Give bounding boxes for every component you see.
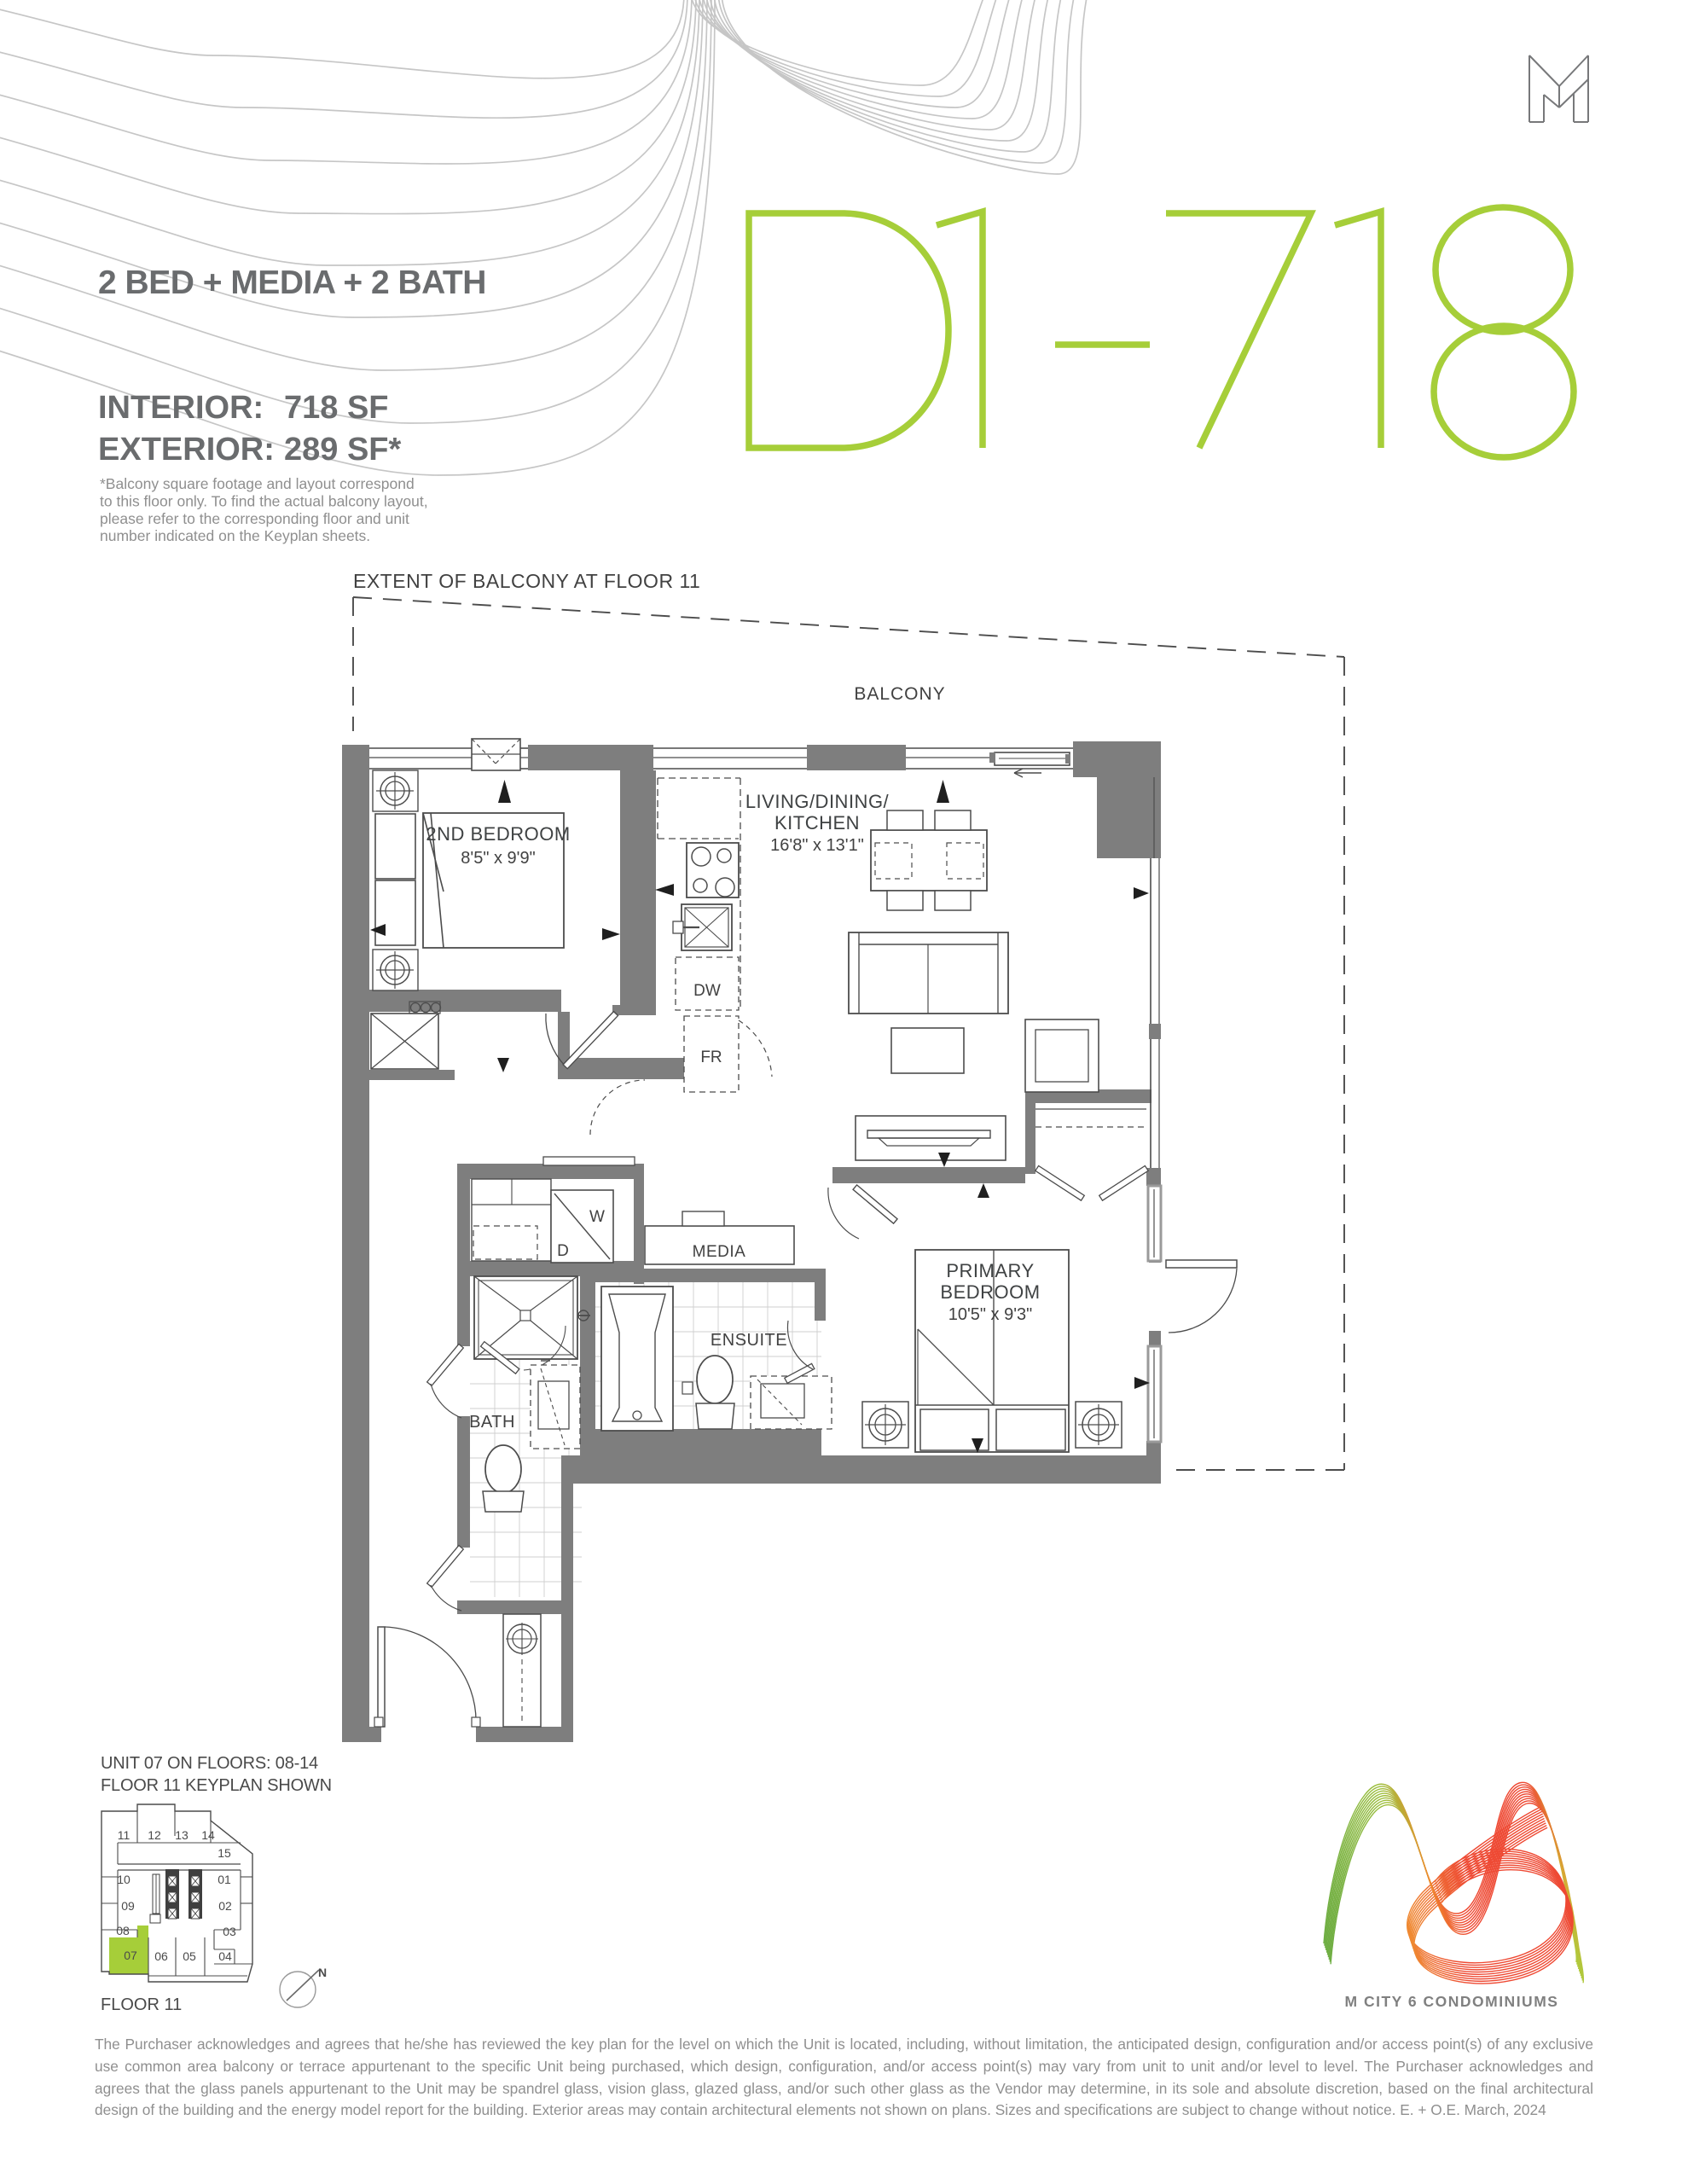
svg-text:FLOOR 11: FLOOR 11 <box>101 1995 182 2014</box>
svg-text:13: 13 <box>175 1828 189 1842</box>
svg-text:08: 08 <box>116 1924 130 1937</box>
svg-text:to this floor only. To find th: to this floor only. To find the actual b… <box>100 492 428 509</box>
svg-text:KITCHEN: KITCHEN <box>774 812 860 834</box>
svg-text:2ND BEDROOM: 2ND BEDROOM <box>426 823 570 845</box>
svg-text:16'8" x 13'1": 16'8" x 13'1" <box>770 836 864 855</box>
svg-text:12: 12 <box>148 1828 161 1842</box>
svg-text:04: 04 <box>218 1949 232 1963</box>
svg-text:07: 07 <box>124 1949 137 1962</box>
svg-text:D: D <box>557 1242 569 1260</box>
svg-text:INTERIOR:718 SF: INTERIOR:718 SF <box>98 390 389 426</box>
svg-text:02: 02 <box>218 1899 232 1913</box>
svg-text:8'5" x 9'9": 8'5" x 9'9" <box>461 849 535 868</box>
svg-text:10: 10 <box>117 1873 131 1886</box>
svg-text:N: N <box>318 1966 327 1979</box>
svg-text:W: W <box>589 1208 605 1226</box>
svg-text:M CITY 6 CONDOMINIUMS: M CITY 6 CONDOMINIUMS <box>1345 1993 1559 2010</box>
svg-text:BATH: BATH <box>469 1413 515 1432</box>
svg-text:UNIT 07 ON FLOORS: 08-14: UNIT 07 ON FLOORS: 08-14 <box>101 1754 318 1773</box>
svg-text:10'5" x 9'3": 10'5" x 9'3" <box>948 1305 1033 1324</box>
svg-text:05: 05 <box>183 1949 196 1963</box>
svg-text:03: 03 <box>223 1925 236 1938</box>
svg-text:PRIMARY: PRIMARY <box>946 1260 1034 1281</box>
svg-text:FLOOR 11 KEYPLAN SHOWN: FLOOR 11 KEYPLAN SHOWN <box>101 1776 332 1795</box>
svg-text:11: 11 <box>118 1828 131 1842</box>
svg-text:EXTERIOR:289 SF*: EXTERIOR:289 SF* <box>98 432 402 468</box>
svg-text:please refer to the correspond: please refer to the corresponding floor … <box>100 510 409 527</box>
svg-text:LIVING/DINING/: LIVING/DINING/ <box>745 791 890 812</box>
svg-text:ENSUITE: ENSUITE <box>711 1331 787 1350</box>
svg-text:FR: FR <box>700 1048 722 1066</box>
svg-text:number indicated on the Keypla: number indicated on the Keyplan sheets. <box>100 527 370 544</box>
svg-text:14: 14 <box>201 1828 215 1842</box>
svg-text:2 BED + MEDIA + 2 BATH: 2 BED + MEDIA + 2 BATH <box>98 264 486 301</box>
svg-text:BEDROOM: BEDROOM <box>940 1281 1040 1303</box>
svg-text:09: 09 <box>121 1899 135 1913</box>
svg-text:BALCONY: BALCONY <box>854 684 945 704</box>
svg-text:*Balcony square footage and la: *Balcony square footage and layout corre… <box>100 475 415 492</box>
svg-text:01: 01 <box>218 1873 231 1886</box>
svg-text:06: 06 <box>154 1949 168 1963</box>
svg-text:EXTENT OF BALCONY AT FLOOR 11: EXTENT OF BALCONY AT FLOOR 11 <box>353 570 700 592</box>
svg-text:DW: DW <box>693 982 721 1000</box>
svg-text:MEDIA: MEDIA <box>693 1243 746 1261</box>
svg-text:15: 15 <box>218 1846 231 1860</box>
